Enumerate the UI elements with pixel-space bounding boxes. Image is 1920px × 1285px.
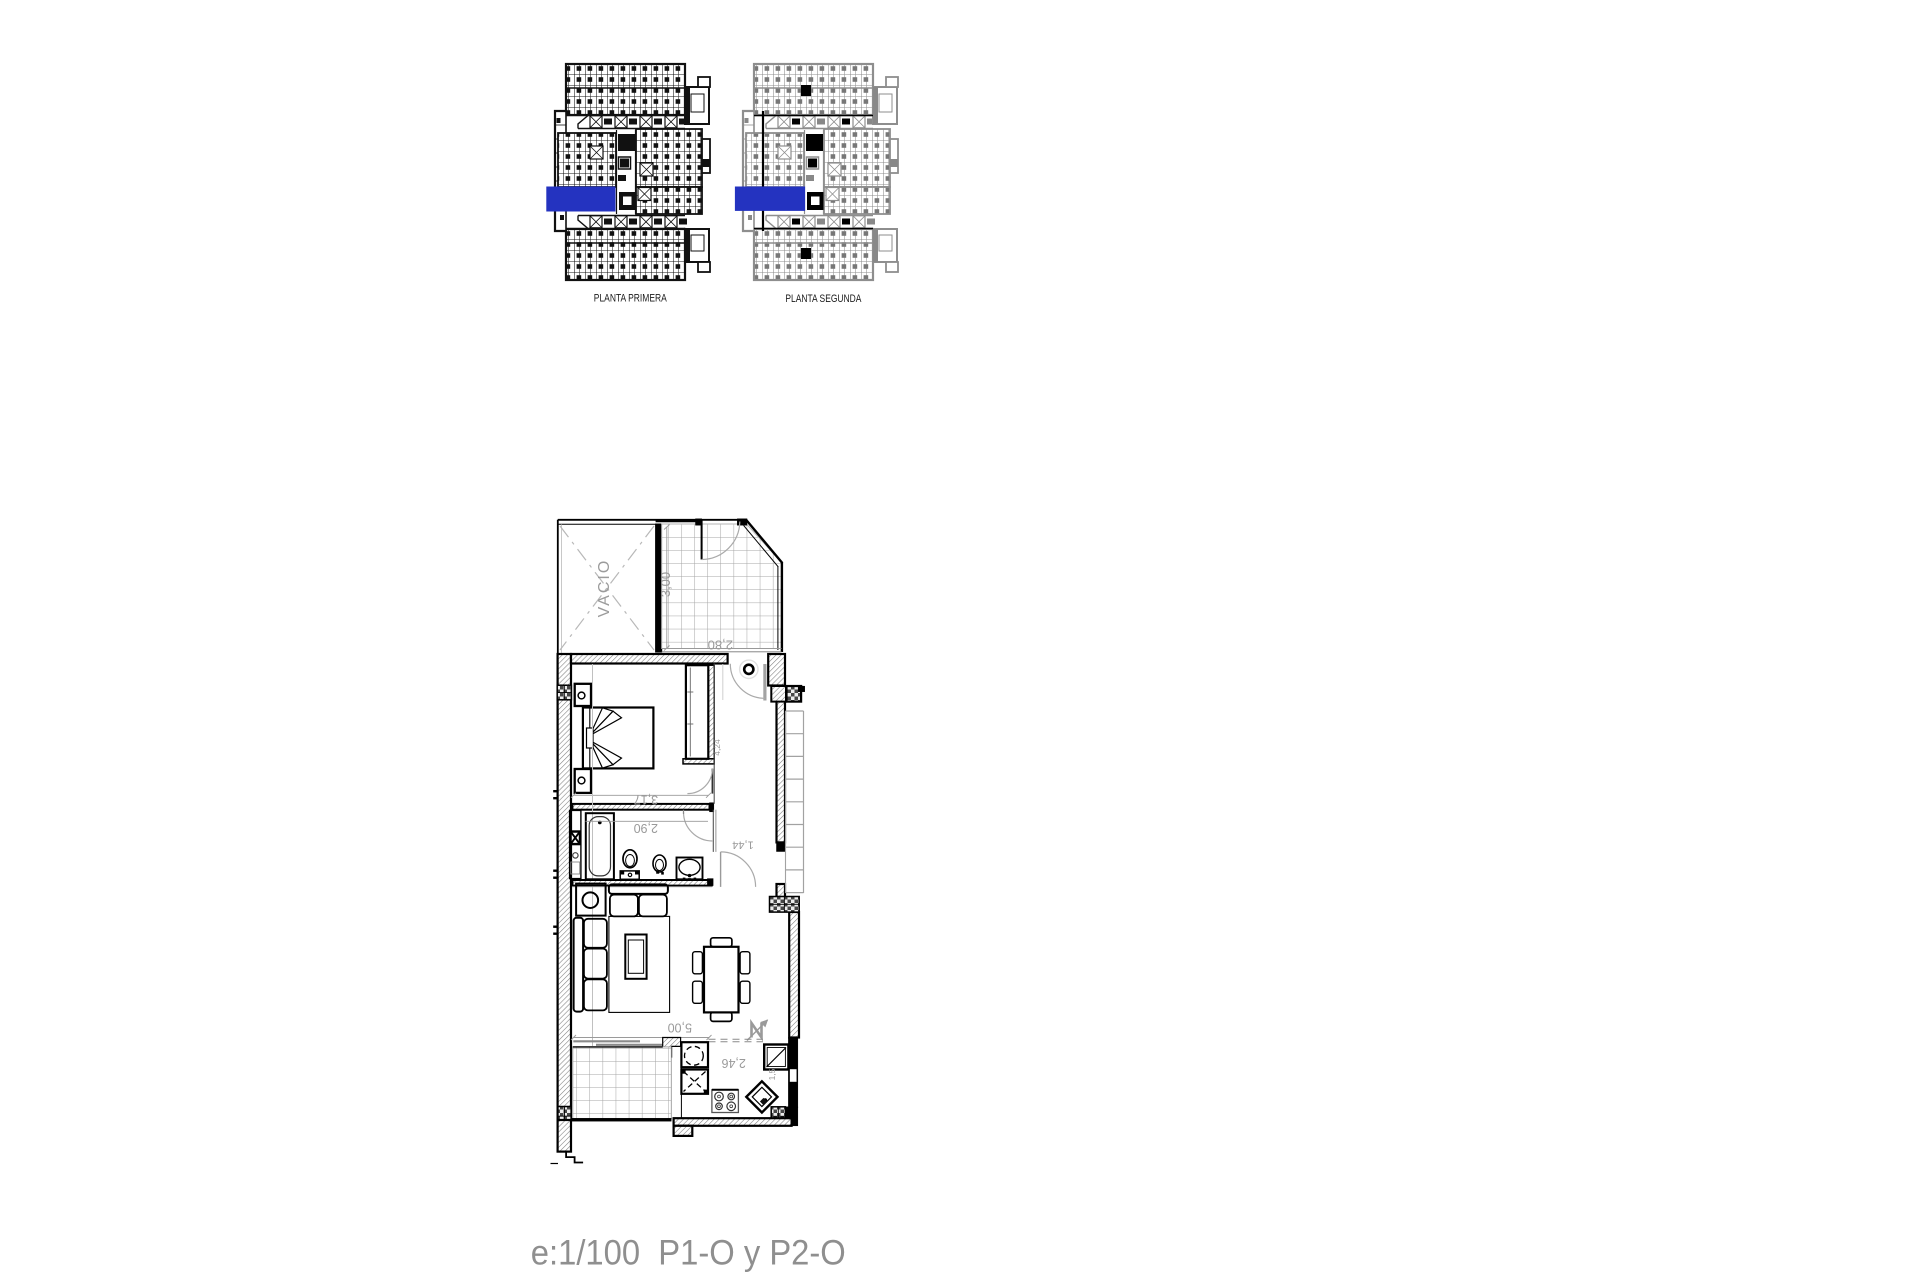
svg-text:1,5: 1,5 xyxy=(767,1068,777,1080)
svg-text:1,44: 1,44 xyxy=(732,839,753,851)
svg-text:2,90: 2,90 xyxy=(634,821,658,835)
svg-text:3,00: 3,00 xyxy=(658,572,673,597)
svg-text:2,46: 2,46 xyxy=(721,1056,745,1070)
svg-text:e:1/100 P1-O y P2-O: e:1/100 P1-O y P2-O xyxy=(531,1234,846,1273)
svg-text:VACIO: VACIO xyxy=(596,559,613,618)
svg-text:PLANTA PRIMERA: PLANTA PRIMERA xyxy=(594,293,668,305)
svg-text:2,80: 2,80 xyxy=(708,638,733,653)
svg-text:3,17: 3,17 xyxy=(634,792,658,806)
svg-text:4,24: 4,24 xyxy=(712,739,722,756)
svg-text:PLANTA SEGUNDA: PLANTA SEGUNDA xyxy=(785,293,862,305)
svg-text:5,00: 5,00 xyxy=(668,1021,692,1035)
